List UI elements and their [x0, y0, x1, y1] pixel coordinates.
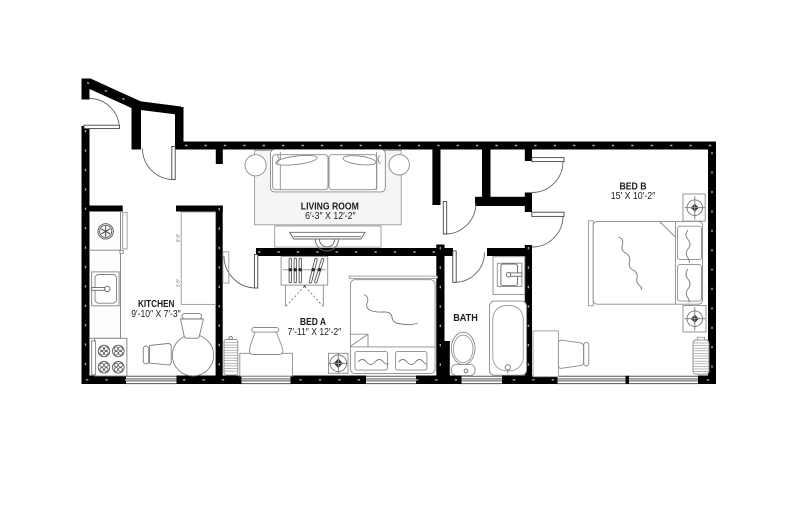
svg-text:KITCHEN: KITCHEN [138, 299, 175, 310]
svg-text:15′ X 10′-2″: 15′ X 10′-2″ [611, 191, 656, 202]
svg-text:7′-11″ X 12′-2″: 7′-11″ X 12′-2″ [288, 327, 342, 338]
svg-text:2′-5″: 2′-5″ [176, 278, 181, 287]
svg-text:5′-3″: 5′-3″ [176, 233, 181, 242]
svg-text:BATH: BATH [453, 313, 478, 324]
svg-text:9′-10″ X 7′-3″: 9′-10″ X 7′-3″ [131, 309, 181, 320]
svg-text:6′-3″ X 12′-2″: 6′-3″ X 12′-2″ [305, 211, 356, 222]
